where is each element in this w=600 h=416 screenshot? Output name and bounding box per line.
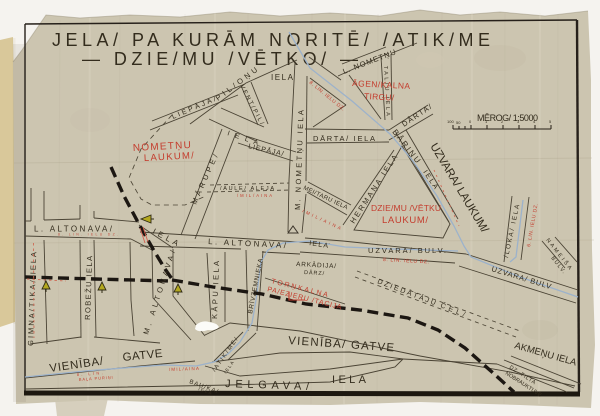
- svg-text:DĀRTA/ IELA: DĀRTA/ IELA: [313, 134, 375, 143]
- svg-text:TIRGU/: TIRGU/: [364, 91, 395, 103]
- svg-text:IELA: IELA: [271, 73, 294, 82]
- svg-text:100: 100: [447, 119, 454, 124]
- svg-text:DĀRZ/: DĀRZ/: [304, 269, 325, 277]
- svg-text:UZVARA/ BULV.: UZVARA/ BULV.: [368, 246, 446, 255]
- svg-text:LAUKUM/: LAUKUM/: [382, 215, 428, 226]
- svg-text:DZIE/MU /VĒTKU: DZIE/MU /VĒTKU: [371, 203, 441, 213]
- svg-text:/AULE/ ALEJA: /AULE/ ALEJA: [220, 186, 274, 192]
- svg-text:— DZIE/MU /VĒTKO/ —: — DZIE/MU /VĒTKO/ —: [82, 49, 358, 69]
- svg-text:50: 50: [456, 120, 461, 125]
- svg-text:JELA/ PA KURĀM NORITĒ/ /ATIK/M: JELA/ PA KURĀM NORITĒ/ /ATIK/ME: [52, 30, 490, 50]
